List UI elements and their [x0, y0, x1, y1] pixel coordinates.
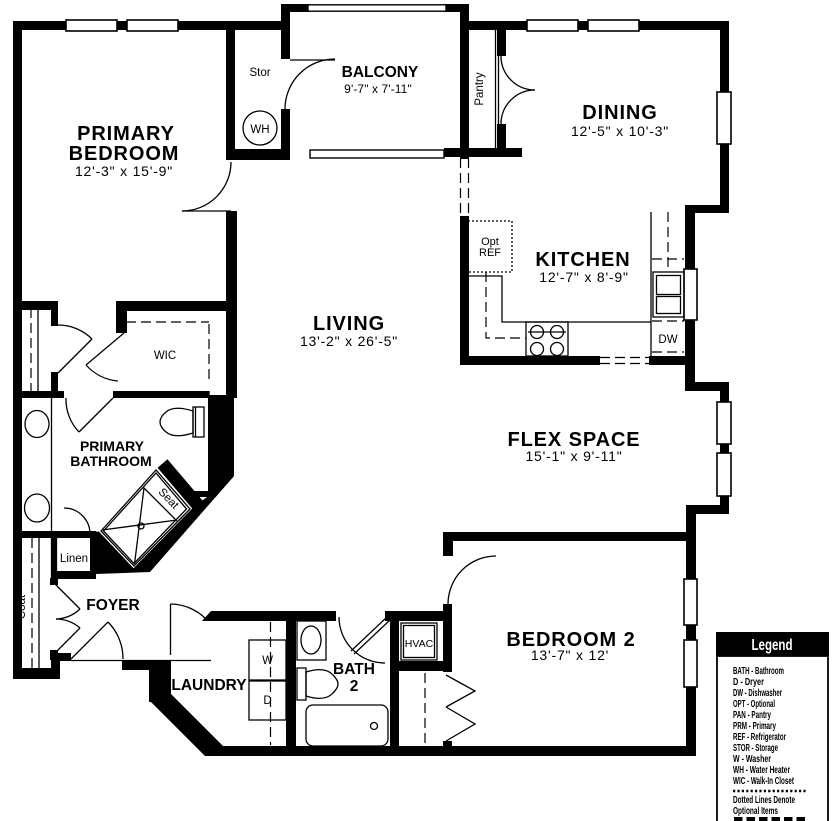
- svg-text:BALCONY: BALCONY: [342, 64, 419, 81]
- svg-text:FOYER: FOYER: [86, 597, 139, 614]
- svg-text:WIC: WIC: [154, 350, 176, 362]
- svg-text:DW: DW: [658, 334, 677, 346]
- svg-text:Linen: Linen: [60, 553, 88, 565]
- svg-text:BATHROOM: BATHROOM: [70, 453, 151, 469]
- svg-text:Coat: Coat: [16, 594, 28, 619]
- svg-text:Pantry: Pantry: [474, 72, 486, 105]
- svg-text:15'-1" x 9'-11": 15'-1" x 9'-11": [525, 448, 622, 464]
- svg-text:Legend: Legend: [752, 637, 793, 654]
- svg-text:W: W: [262, 655, 273, 667]
- svg-text:KITCHEN: KITCHEN: [535, 249, 630, 271]
- svg-text:REF: REF: [479, 247, 501, 259]
- svg-text:D: D: [263, 695, 271, 707]
- svg-text:Optional Items: Optional Items: [733, 805, 778, 817]
- svg-text:WH: WH: [250, 124, 269, 136]
- svg-text:12'-3" x 15'-9": 12'-3" x 15'-9": [75, 163, 173, 179]
- svg-text:Stor: Stor: [249, 67, 270, 79]
- svg-text:PRIMARY: PRIMARY: [77, 123, 175, 145]
- svg-text:WIC - Walk-In Closet: WIC - Walk-In Closet: [733, 775, 794, 787]
- svg-text:2: 2: [350, 678, 359, 695]
- svg-text:13'-7" x 12': 13'-7" x 12': [531, 647, 609, 663]
- svg-text:BATH: BATH: [333, 661, 375, 678]
- svg-text:13'-2" x 26'-5": 13'-2" x 26'-5": [300, 333, 398, 349]
- svg-text:BEDROOM: BEDROOM: [69, 143, 180, 165]
- svg-text:HVAC: HVAC: [405, 638, 434, 650]
- svg-text:LIVING: LIVING: [313, 313, 385, 335]
- svg-text:12'-5" x 10'-3": 12'-5" x 10'-3": [571, 123, 669, 139]
- svg-text:LAUNDRY: LAUNDRY: [171, 677, 247, 694]
- svg-text:PRIMARY: PRIMARY: [80, 438, 145, 454]
- svg-text:DINING: DINING: [582, 102, 657, 124]
- svg-text:9'-7" x 7'-11": 9'-7" x 7'-11": [344, 82, 412, 96]
- svg-text:12'-7" x 8'-9": 12'-7" x 8'-9": [539, 269, 629, 285]
